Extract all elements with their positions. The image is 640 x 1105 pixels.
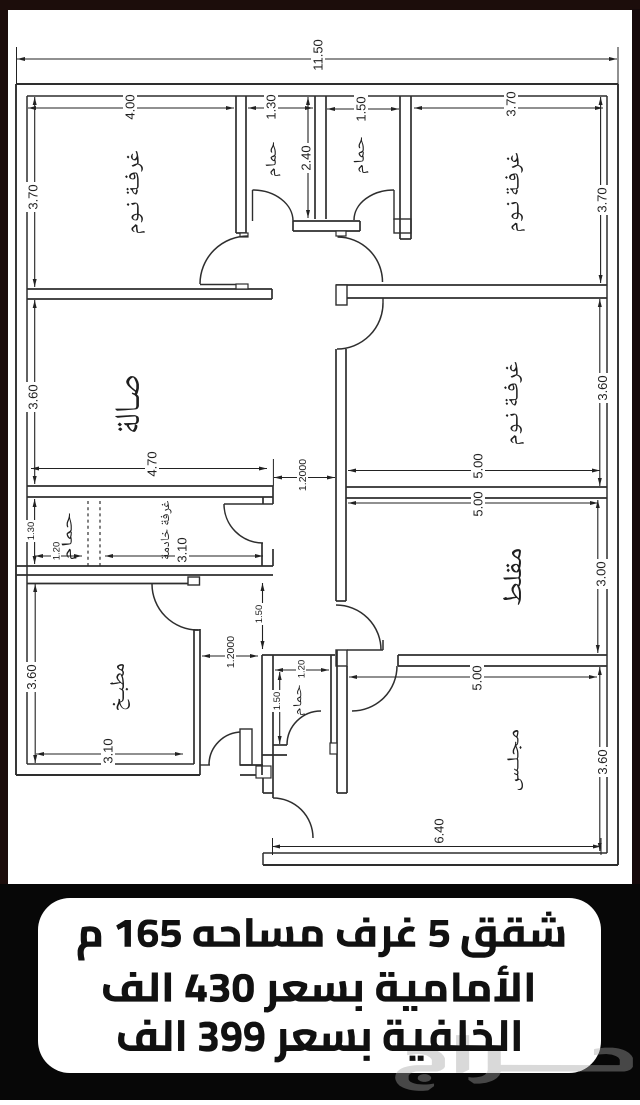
svg-text:1.2000: 1.2000 <box>225 636 237 668</box>
svg-text:5.00: 5.00 <box>470 665 485 690</box>
svg-text:6.40: 6.40 <box>432 818 447 843</box>
svg-text:1.2000: 1.2000 <box>297 459 309 491</box>
svg-text:5.00: 5.00 <box>471 491 486 516</box>
svg-text:3.60: 3.60 <box>595 749 610 774</box>
svg-text:3.60: 3.60 <box>24 664 39 689</box>
svg-text:3.60: 3.60 <box>595 375 610 400</box>
svg-text:1.20: 1.20 <box>51 542 62 561</box>
svg-text:3.00: 3.00 <box>594 561 609 586</box>
svg-text:1.30: 1.30 <box>26 522 37 541</box>
svg-text:5.00: 5.00 <box>471 453 486 478</box>
svg-text:1.20: 1.20 <box>296 660 307 679</box>
svg-text:1.50: 1.50 <box>354 96 369 121</box>
svg-text:4.00: 4.00 <box>123 94 138 119</box>
svg-text:3.10: 3.10 <box>101 738 116 763</box>
svg-text:3.70: 3.70 <box>26 184 41 209</box>
svg-text:3.10: 3.10 <box>175 537 190 562</box>
svg-text:3.60: 3.60 <box>26 384 41 409</box>
svg-text:1.30: 1.30 <box>264 94 279 119</box>
svg-text:4.70: 4.70 <box>145 451 160 476</box>
svg-text:3.70: 3.70 <box>595 187 610 212</box>
svg-text:1.50: 1.50 <box>254 605 265 624</box>
svg-text:2.40: 2.40 <box>299 145 314 170</box>
svg-text:1.50: 1.50 <box>272 692 283 711</box>
svg-text:3.70: 3.70 <box>504 91 519 116</box>
svg-text:11.50: 11.50 <box>311 39 326 71</box>
